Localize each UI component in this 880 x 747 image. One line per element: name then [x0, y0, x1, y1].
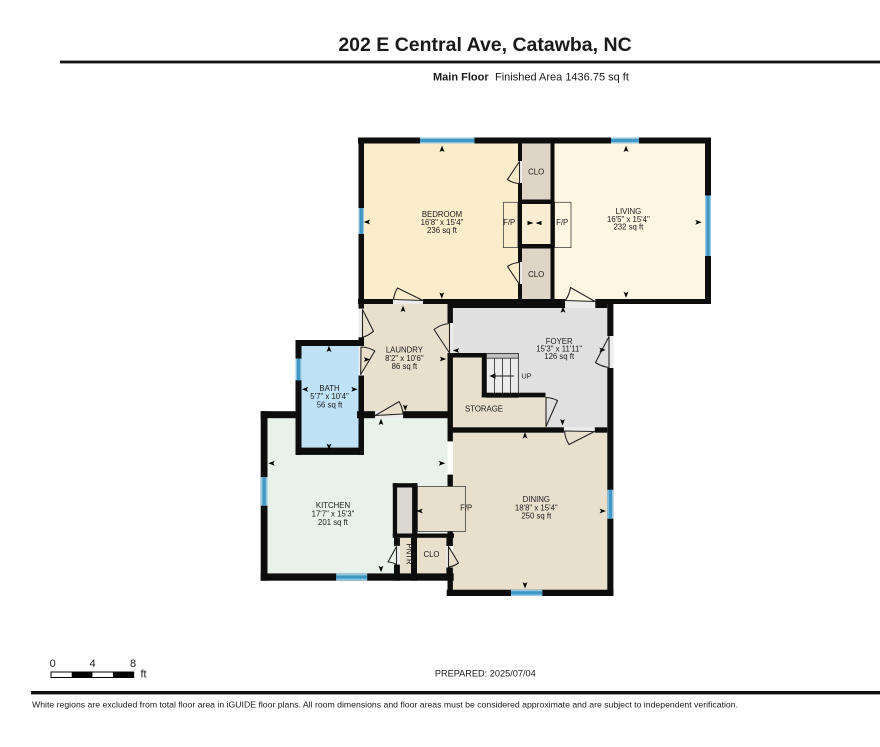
svg-text:CLO: CLO — [528, 270, 544, 279]
svg-text:PNTR: PNTR — [405, 543, 414, 565]
svg-text:ft: ft — [141, 669, 147, 681]
svg-text:236 sq ft: 236 sq ft — [427, 226, 458, 235]
svg-text:F/P: F/P — [503, 218, 515, 227]
svg-text:F/P: F/P — [556, 218, 568, 227]
svg-text:0: 0 — [50, 658, 56, 670]
svg-text:CLO: CLO — [528, 167, 544, 176]
svg-text:8: 8 — [130, 658, 136, 670]
svg-text:PREPARED: 2025/07/04: PREPARED: 2025/07/04 — [435, 669, 536, 679]
svg-text:Main Floor: Main Floor — [433, 72, 489, 84]
svg-text:UP: UP — [522, 371, 532, 380]
svg-text:Finished Area 1436.75 sq ft: Finished Area 1436.75 sq ft — [495, 72, 629, 84]
svg-text:White regions are excluded fro: White regions are excluded from total fl… — [32, 700, 738, 710]
svg-text:86 sq ft: 86 sq ft — [392, 362, 418, 371]
svg-text:4: 4 — [90, 658, 96, 670]
svg-text:202 E Central Ave, Catawba, NC: 202 E Central Ave, Catawba, NC — [338, 34, 631, 56]
svg-text:250 sq ft: 250 sq ft — [521, 512, 552, 521]
svg-text:F/P: F/P — [460, 503, 472, 512]
svg-text:CLO: CLO — [423, 550, 439, 559]
svg-text:STORAGE: STORAGE — [465, 404, 503, 413]
svg-text:126 sq ft: 126 sq ft — [544, 352, 575, 361]
svg-text:56 sq ft: 56 sq ft — [317, 400, 343, 409]
svg-text:201 sq ft: 201 sq ft — [318, 518, 349, 527]
svg-text:232 sq ft: 232 sq ft — [613, 222, 644, 231]
